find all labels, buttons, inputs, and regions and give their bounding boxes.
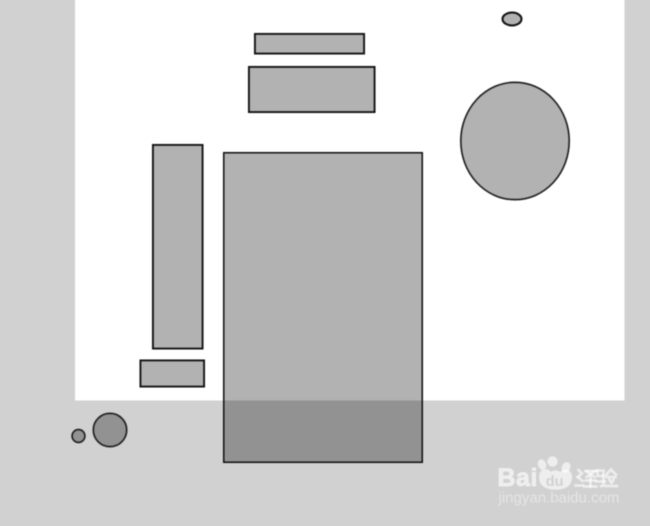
svg-text:jingyan.baidu.com: jingyan.baidu.com [498,490,620,507]
svg-text:du: du [546,474,564,490]
svg-text:Bai: Bai [498,464,538,492]
